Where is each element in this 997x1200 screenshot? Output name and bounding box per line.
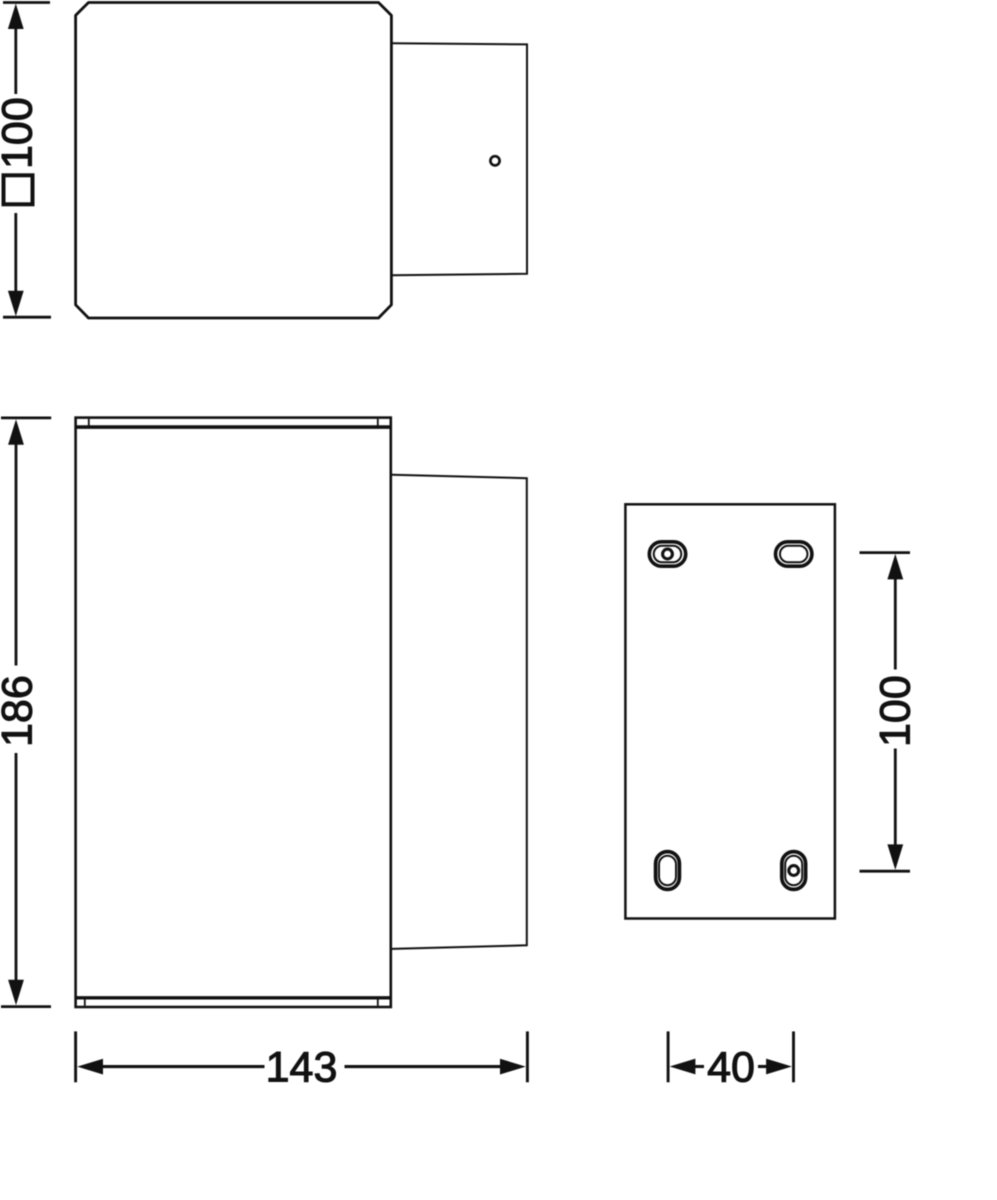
svg-text:100: 100 (0, 97, 41, 169)
svg-text:100: 100 (871, 675, 919, 747)
svg-text:40: 40 (707, 1044, 755, 1092)
svg-text:186: 186 (0, 675, 42, 747)
svg-text:143: 143 (266, 1044, 338, 1092)
